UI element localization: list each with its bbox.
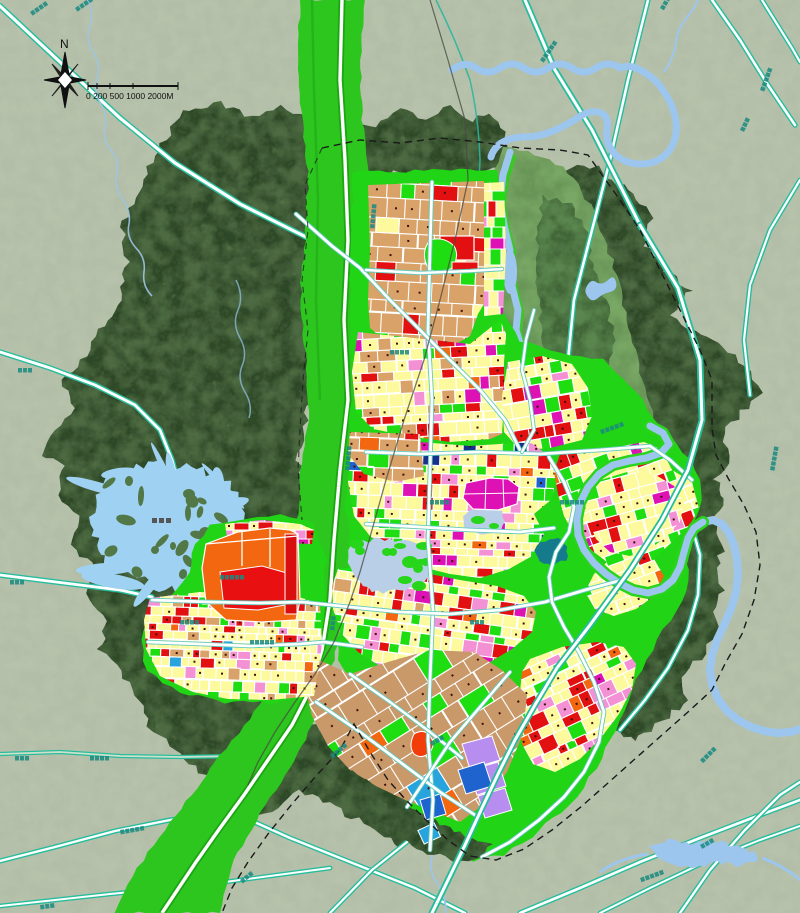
svg-text:0 200 500 1000 2000M: 0 200 500 1000 2000M: [86, 91, 173, 101]
svg-text:N: N: [60, 37, 69, 51]
